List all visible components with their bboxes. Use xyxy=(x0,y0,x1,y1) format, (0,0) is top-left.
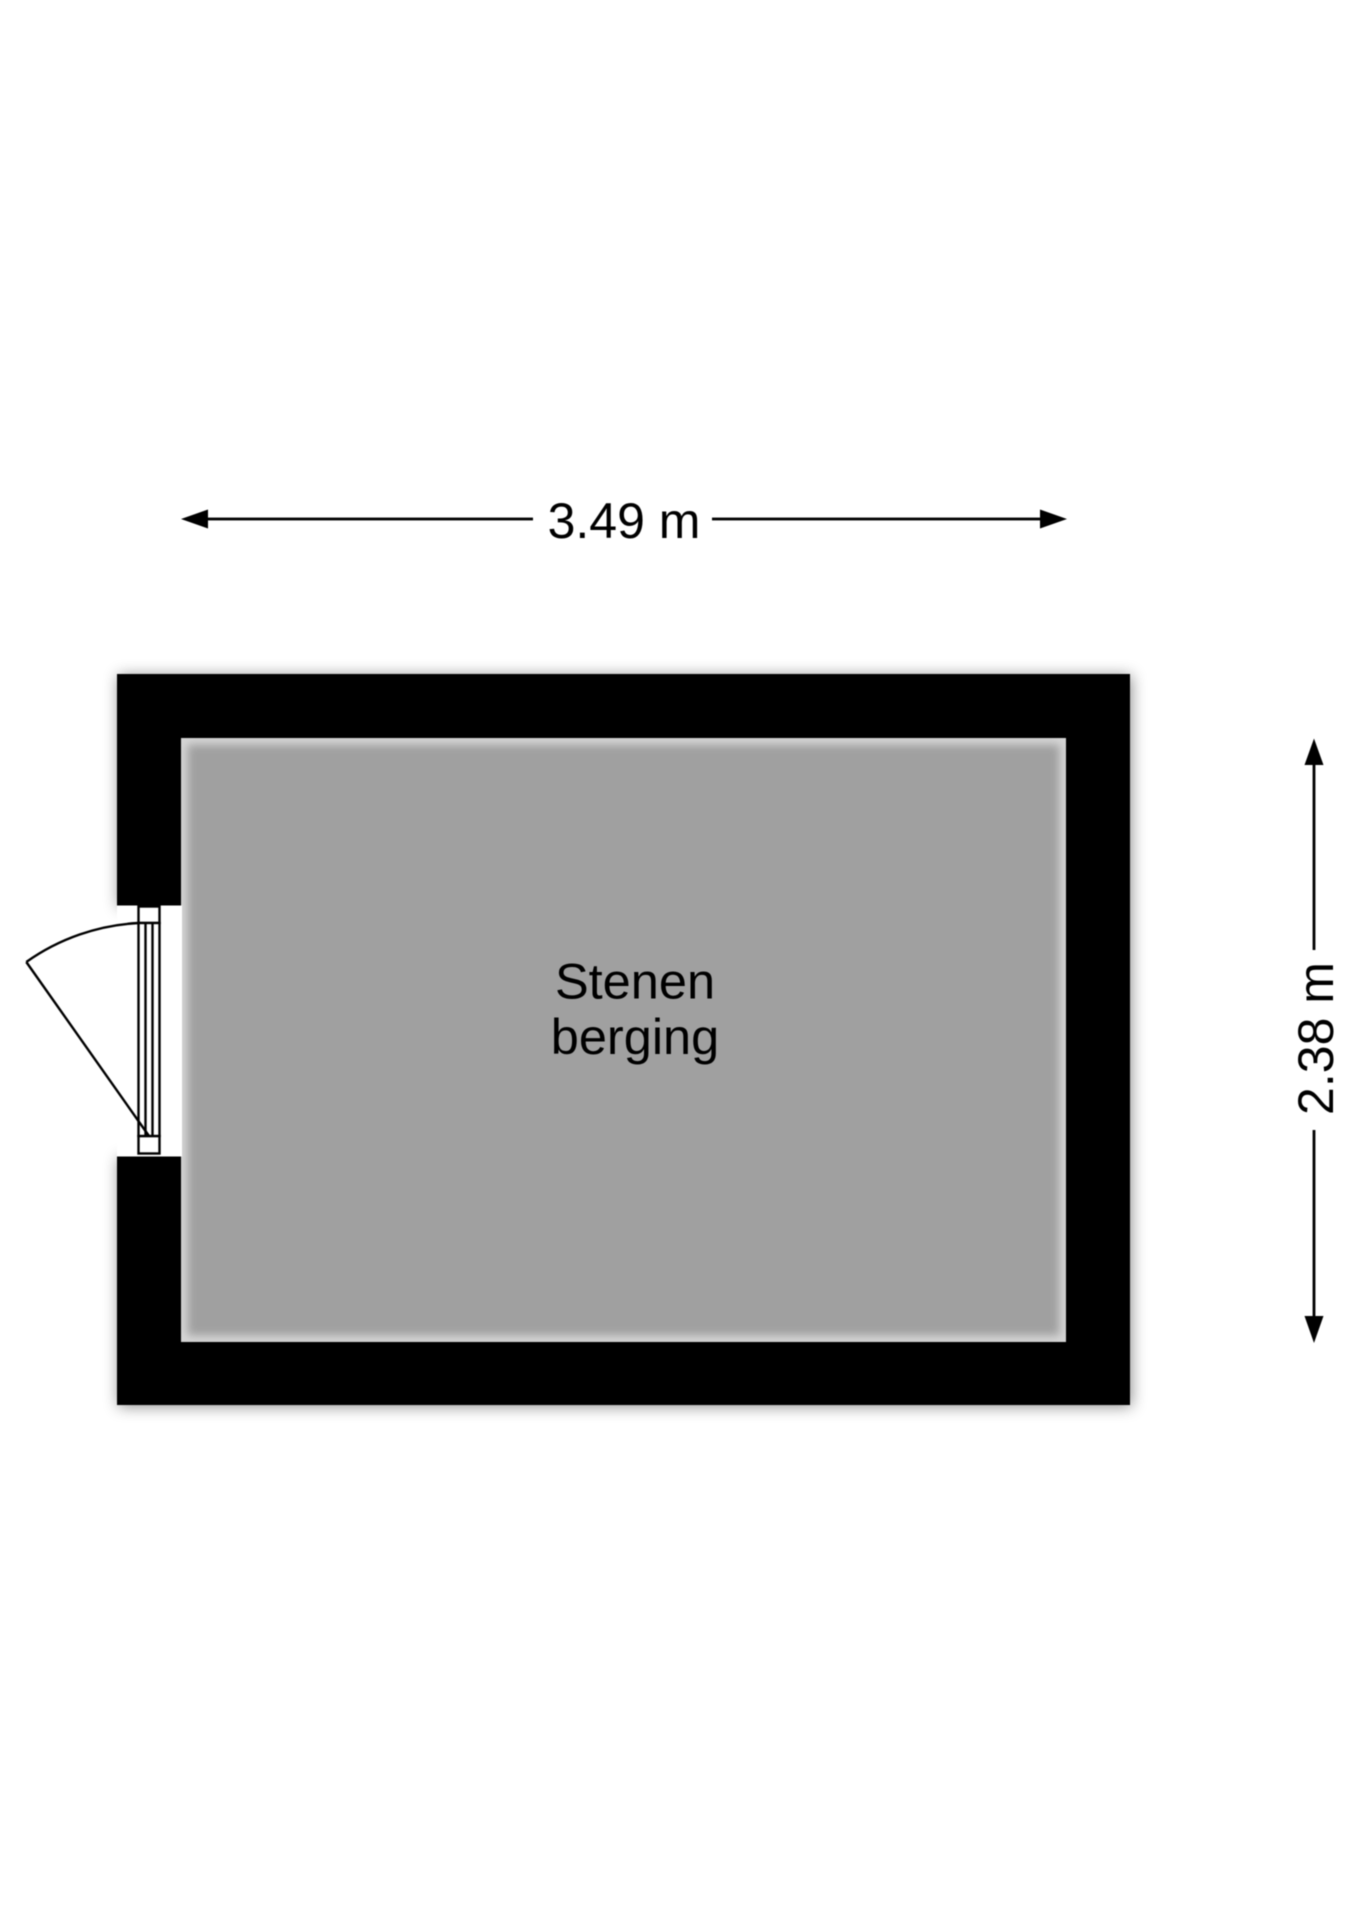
svg-text:3.49 m: 3.49 m xyxy=(548,493,701,549)
svg-text:2.38 m: 2.38 m xyxy=(1288,962,1344,1115)
svg-text:Stenenberging: Stenenberging xyxy=(551,953,719,1066)
